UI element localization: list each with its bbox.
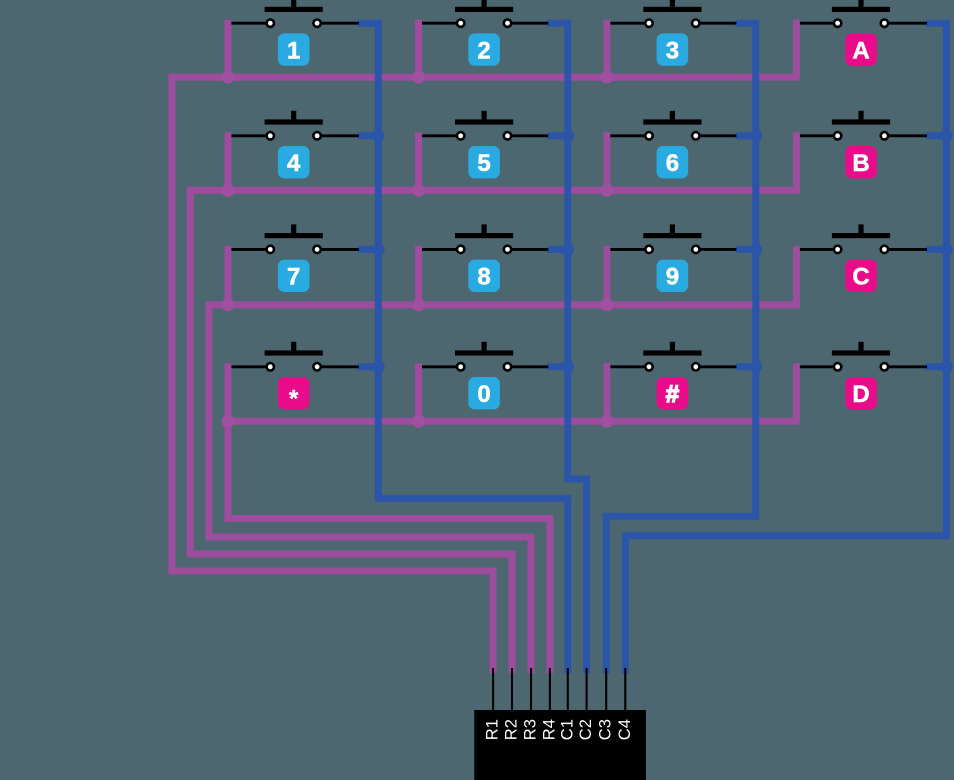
svg-text:R3: R3 xyxy=(522,719,540,740)
svg-text:C: C xyxy=(852,264,869,291)
svg-text:A: A xyxy=(852,37,869,64)
svg-text:7: 7 xyxy=(287,264,300,291)
svg-text:0: 0 xyxy=(477,381,490,408)
svg-text:C2: C2 xyxy=(577,719,595,740)
svg-text:R2: R2 xyxy=(503,719,521,740)
svg-text:*: * xyxy=(289,385,299,412)
svg-text:B: B xyxy=(852,150,869,177)
svg-text:8: 8 xyxy=(477,264,490,291)
svg-text:4: 4 xyxy=(287,150,301,177)
svg-text:C3: C3 xyxy=(597,719,615,740)
svg-text:9: 9 xyxy=(666,264,679,291)
svg-text:1: 1 xyxy=(287,37,300,64)
svg-text:D: D xyxy=(852,381,869,408)
svg-text:R1: R1 xyxy=(484,719,502,740)
svg-text:R4: R4 xyxy=(540,719,558,740)
svg-text:6: 6 xyxy=(666,150,679,177)
svg-text:2: 2 xyxy=(477,37,490,64)
svg-text:5: 5 xyxy=(477,150,490,177)
svg-text:C4: C4 xyxy=(616,719,634,740)
svg-text:#: # xyxy=(666,381,679,408)
svg-text:3: 3 xyxy=(666,37,679,64)
svg-text:C1: C1 xyxy=(558,719,576,740)
